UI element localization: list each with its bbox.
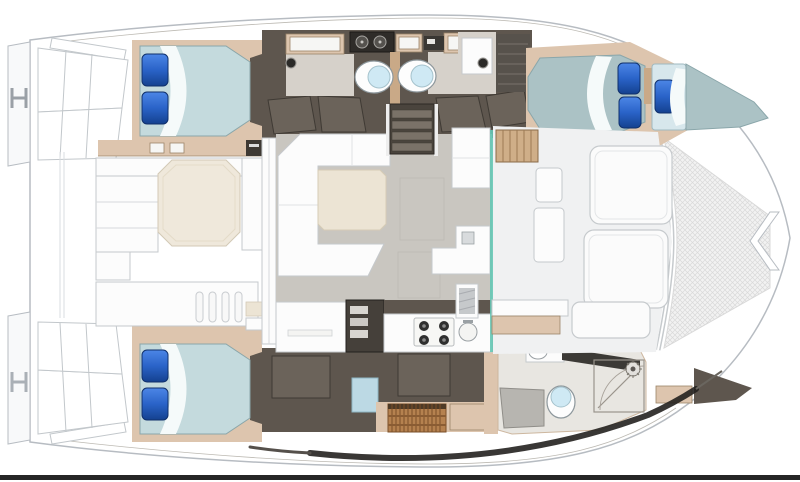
bed-pillow [142,388,168,420]
head-floor [286,54,354,96]
cockpit-table [158,160,240,246]
cockpit-bench [96,282,258,326]
headboard-locker [250,352,262,424]
bed-pillow [142,350,168,382]
bed-pillow [619,97,641,128]
foredeck-seat [536,168,562,202]
bath-mat [500,388,544,428]
cockpit-bench [96,176,158,252]
forward-cabin-steps [496,130,538,162]
counter-item [427,39,435,44]
bed-pillow [142,54,168,86]
catamaran-floorplan: Catamaran deck floor plan [0,0,800,482]
vent-slit [249,144,259,147]
vent-hatch [246,140,262,156]
aft-cockpit [96,140,278,342]
foredeck-seat [534,208,564,262]
head-toilet-icon [398,60,436,92]
shelf-unit [346,300,384,352]
cockpit-bench [242,158,262,250]
twin-sink-vanity [350,32,394,52]
galley-sink-icon [459,323,477,341]
stove-burners-icon [414,318,454,346]
bed-pillow [618,63,640,94]
dresser [462,38,492,74]
window [170,143,184,153]
walkway-counter [492,300,568,316]
deck-fitting-icon [286,58,296,68]
deck-hatch [352,378,378,412]
headboard-locker [250,54,262,126]
sink-icon [462,232,474,244]
hull-access-hatch [456,284,478,318]
bottom-scan-bar [0,475,800,480]
port-hull-interior [132,30,768,152]
aft-cabin-starboard [132,328,262,442]
counter-detail [288,330,332,336]
salon-table [318,170,386,230]
floorplan-svg: Catamaran deck floor plan [0,0,800,482]
aft-cabin-port [132,40,262,152]
bed-pillow [142,92,168,124]
deck-fitting-icon [478,58,488,68]
transom-steps-starboard [38,322,128,444]
window [150,143,164,153]
foredeck [492,126,672,354]
side-table [96,252,130,280]
bow-berth-mattress [686,64,768,130]
head-toilet-icon [547,386,575,418]
faucet [463,320,473,323]
starboard-midship-zone [262,348,498,432]
salon [262,104,493,352]
foredeck-sunpad [590,146,672,224]
foredeck-sunpad [584,230,668,308]
bridgedeck [96,104,672,354]
foredeck-sunpad [572,302,650,338]
head-toilet-icon [355,61,393,93]
companionway-band [492,316,560,334]
galley-counter [276,302,346,352]
teak-grate [388,404,446,432]
companionway-steps-port [386,104,438,156]
